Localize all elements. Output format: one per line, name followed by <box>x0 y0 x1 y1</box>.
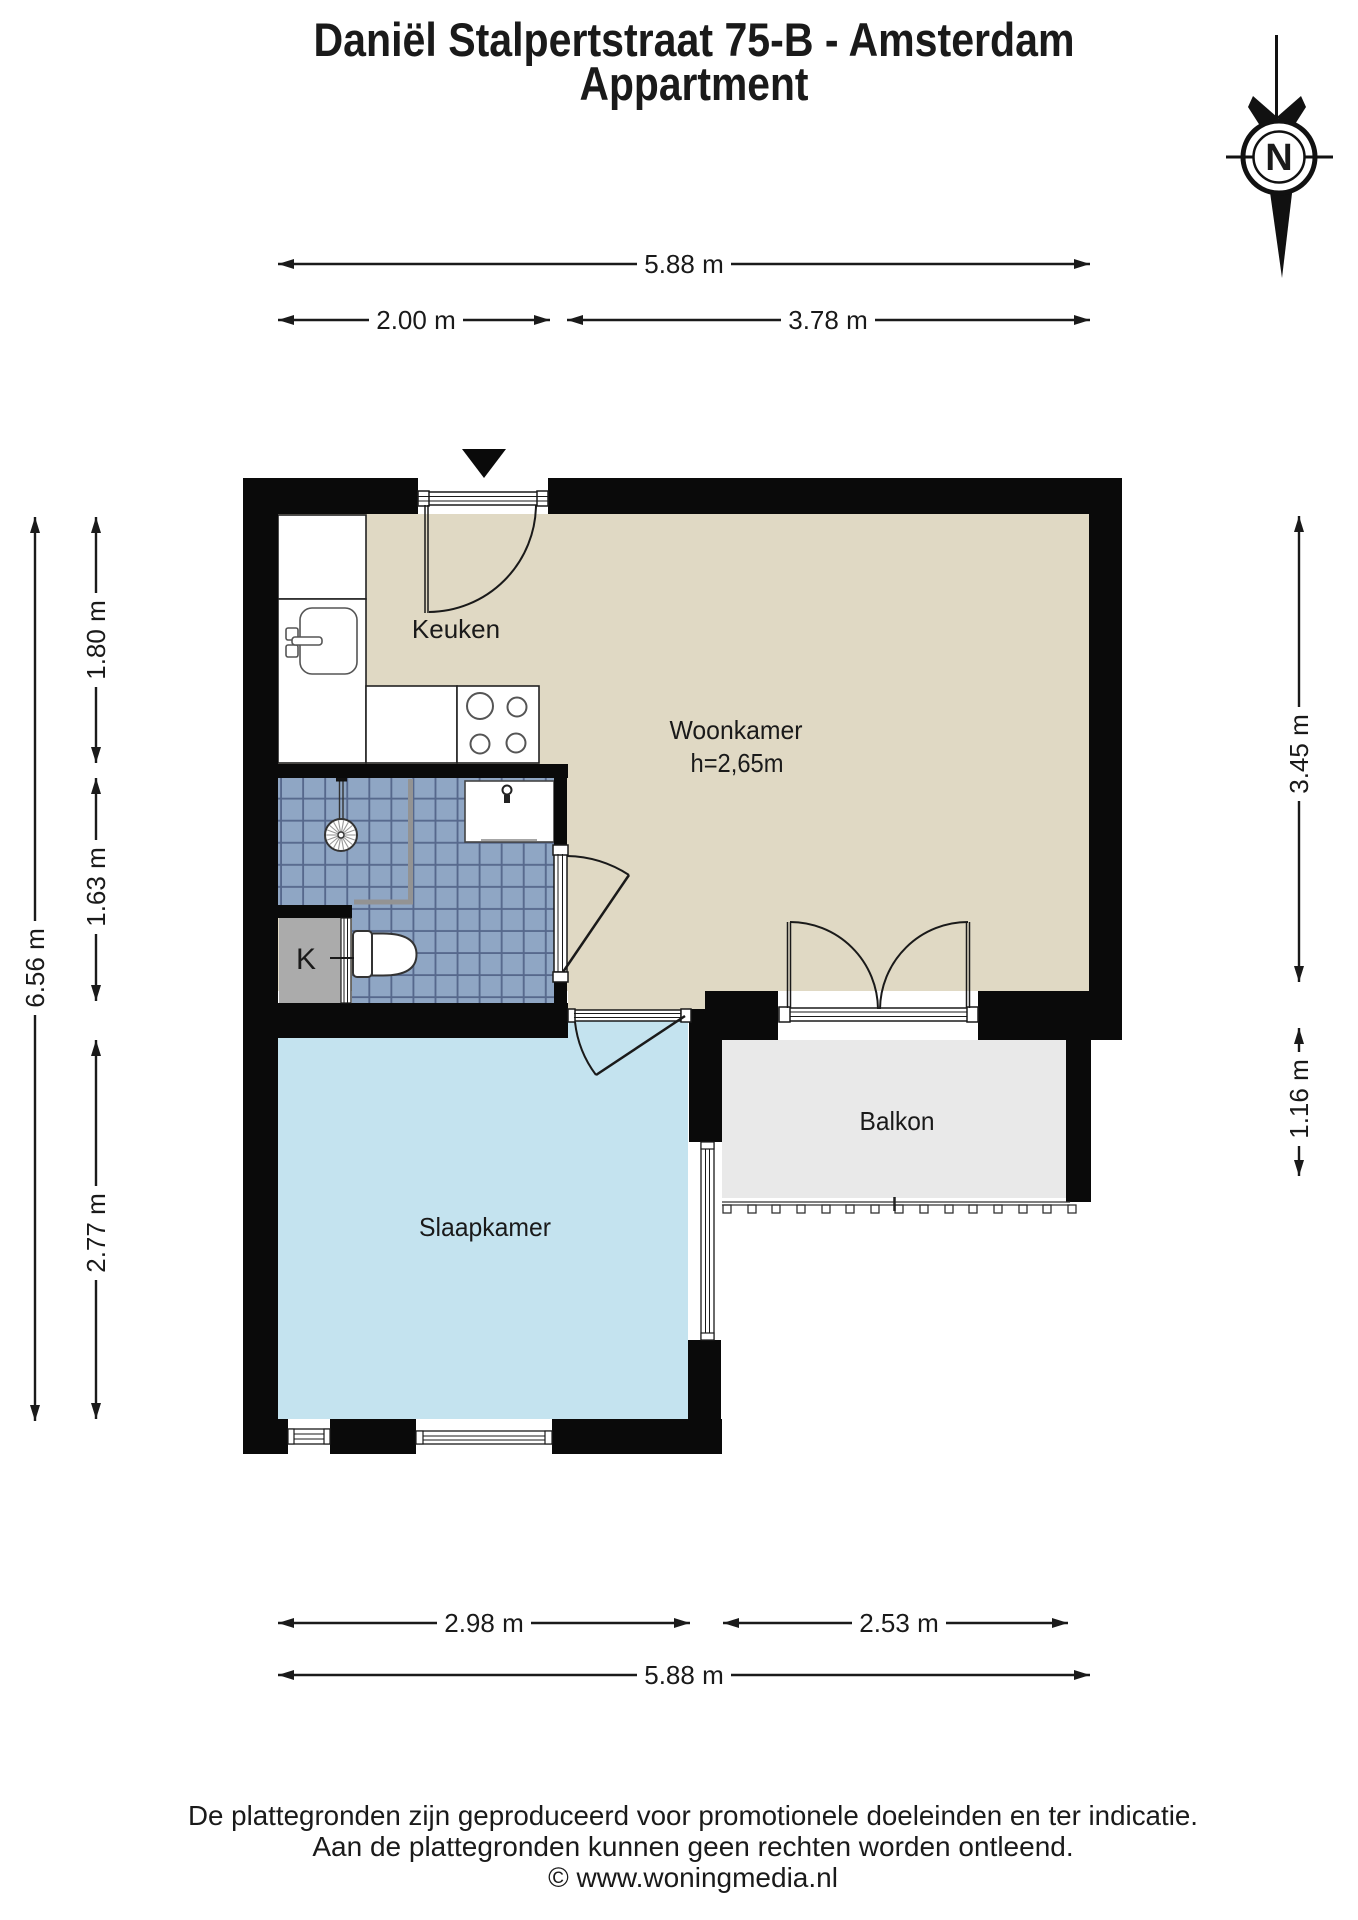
svg-text:2.98 m: 2.98 m <box>444 1608 524 1638</box>
svg-text:Keuken: Keuken <box>412 614 500 644</box>
svg-text:2.53 m: 2.53 m <box>859 1608 939 1638</box>
svg-text:3.78 m: 3.78 m <box>788 305 868 335</box>
svg-text:Aan de plattegronden kunnen ge: Aan de plattegronden kunnen geen rechten… <box>312 1831 1073 1862</box>
svg-text:De plattegronden zijn geproduc: De plattegronden zijn geproduceerd voor … <box>188 1800 1198 1831</box>
svg-text:2.77 m: 2.77 m <box>81 1193 111 1273</box>
svg-text:Woonkamer: Woonkamer <box>670 715 803 745</box>
svg-text:N: N <box>1265 137 1292 179</box>
svg-text:5.88 m: 5.88 m <box>644 1660 724 1690</box>
svg-text:K: K <box>296 943 316 976</box>
svg-text:Slaapkamer: Slaapkamer <box>419 1212 551 1242</box>
svg-text:2.00 m: 2.00 m <box>376 305 456 335</box>
svg-text:Balkon: Balkon <box>860 1106 935 1136</box>
svg-text:1.80 m: 1.80 m <box>81 600 111 680</box>
svg-text:1.63 m: 1.63 m <box>81 847 111 927</box>
svg-text:© www.woningmedia.nl: © www.woningmedia.nl <box>548 1862 838 1893</box>
svg-text:3.45 m: 3.45 m <box>1284 714 1314 794</box>
svg-text:6.56 m: 6.56 m <box>20 928 50 1008</box>
svg-text:1.16 m: 1.16 m <box>1284 1059 1314 1139</box>
svg-text:Appartment: Appartment <box>580 57 809 110</box>
svg-text:h=2,65m: h=2,65m <box>691 748 784 778</box>
svg-text:5.88 m: 5.88 m <box>644 249 724 279</box>
